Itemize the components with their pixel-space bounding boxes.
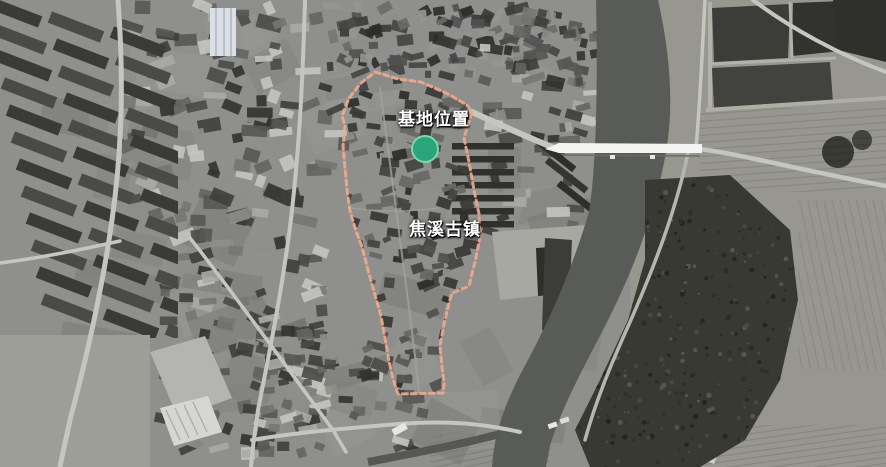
satellite-map: 基地位置 焦溪古镇 xyxy=(0,0,886,467)
label-site-location: 基地位置 xyxy=(398,111,470,130)
label-ancient-town: 焦溪古镇 xyxy=(409,221,481,240)
site-marker xyxy=(412,136,438,162)
